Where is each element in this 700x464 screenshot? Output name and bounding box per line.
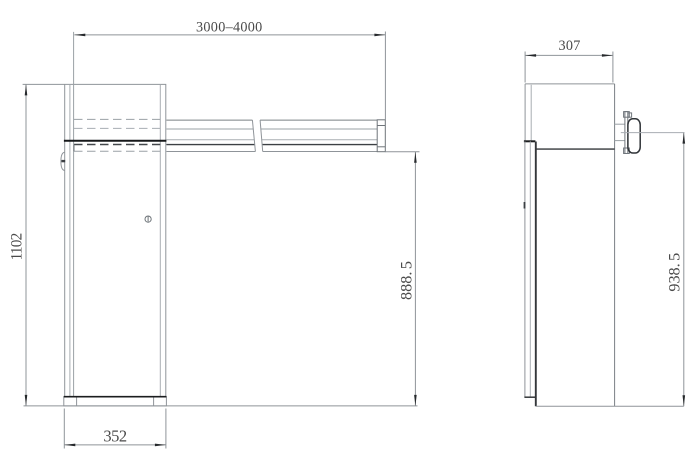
svg-text:3000–4000: 3000–4000 bbox=[196, 20, 263, 36]
svg-text:888.5: 888.5 bbox=[397, 261, 415, 300]
svg-text:1102: 1102 bbox=[9, 233, 26, 260]
svg-text:307: 307 bbox=[559, 38, 581, 54]
svg-text:352: 352 bbox=[103, 426, 127, 445]
svg-text:938.5: 938.5 bbox=[666, 253, 684, 292]
